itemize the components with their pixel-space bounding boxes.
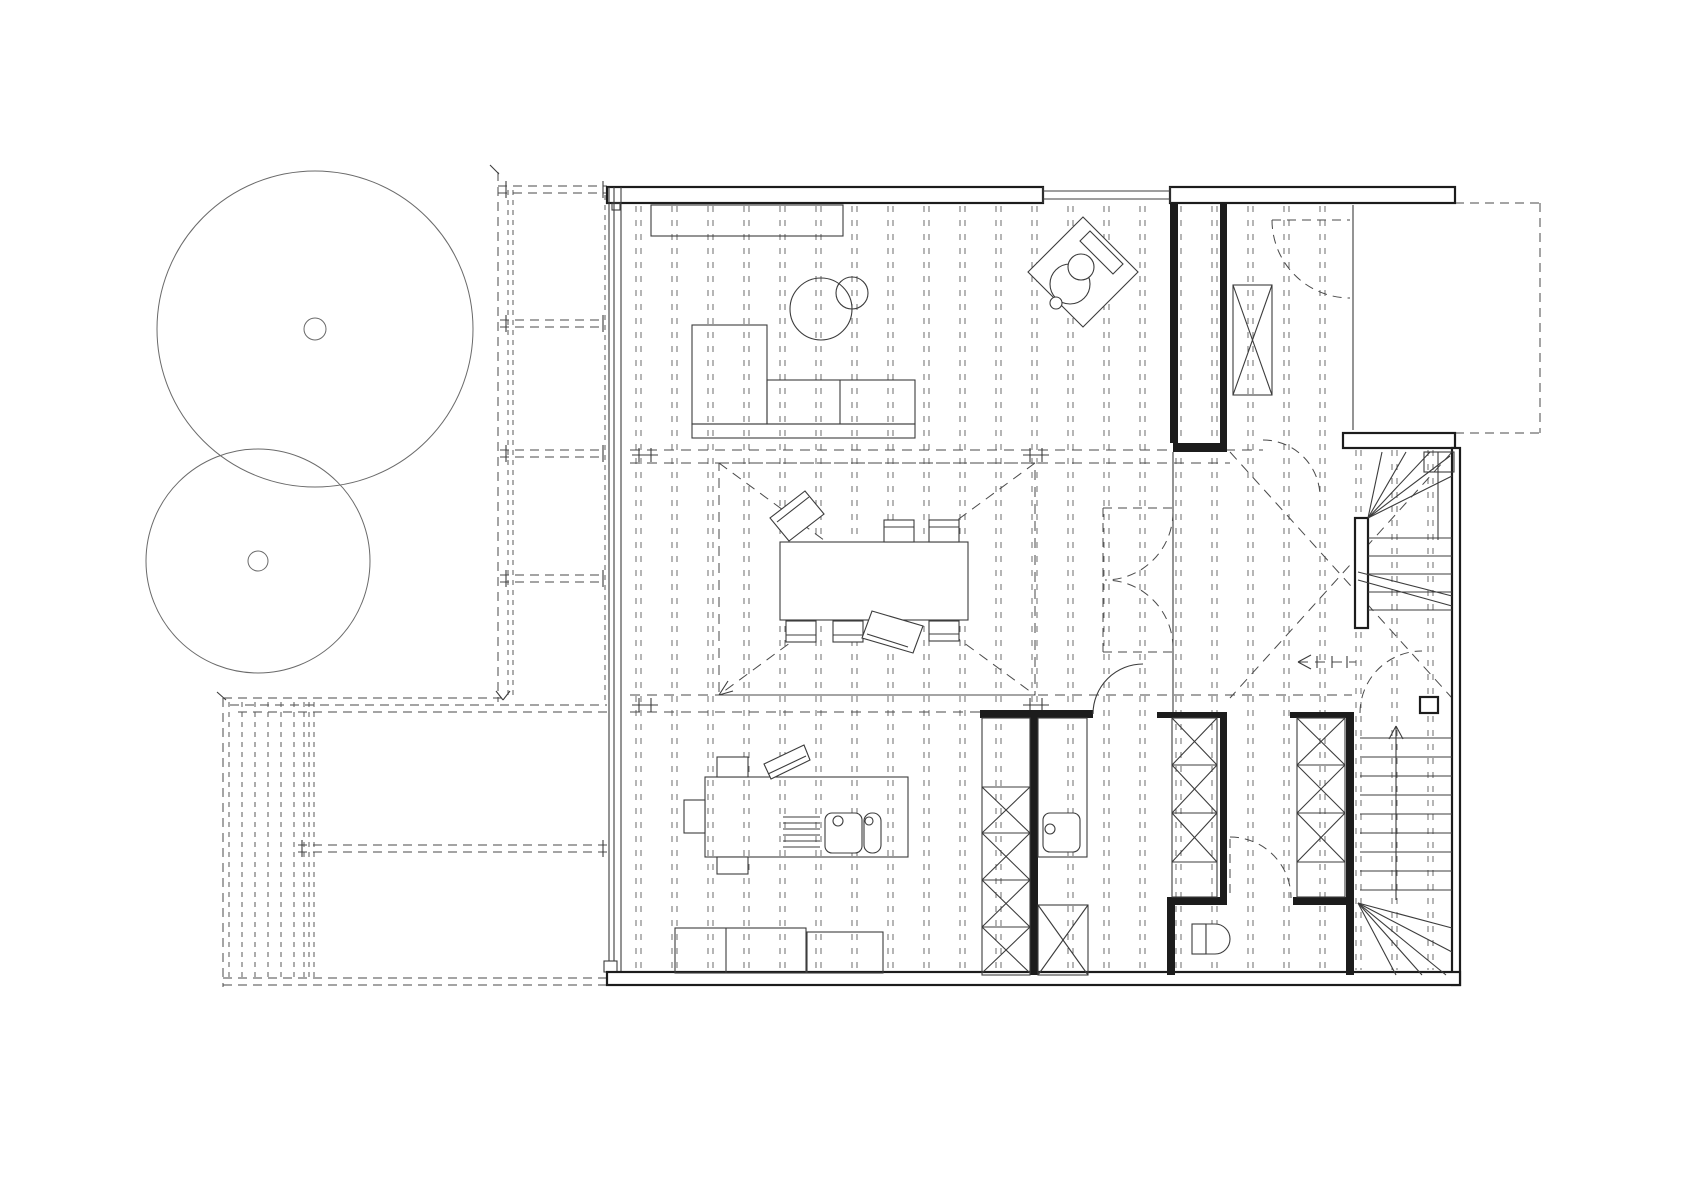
- up-arrow: [1389, 726, 1396, 739]
- east-mid-wall: [1343, 433, 1455, 448]
- dining-table: [780, 542, 968, 620]
- stair-door-swing: [1360, 651, 1422, 713]
- site-trees: [146, 171, 473, 673]
- low-cabinet: [807, 932, 883, 973]
- store-wall: [1290, 712, 1353, 718]
- chair: [884, 520, 914, 542]
- wc-wall: [1167, 897, 1227, 905]
- chair: [929, 621, 959, 641]
- doors: [1093, 220, 1422, 898]
- toilet: [1192, 924, 1206, 954]
- stool: [717, 757, 748, 777]
- bench: [675, 928, 806, 973]
- corner-tick: [490, 165, 499, 174]
- basin: [1043, 813, 1080, 852]
- wardrobe: [1172, 718, 1217, 897]
- north-wall-west: [607, 187, 1043, 203]
- wc-wall: [1220, 712, 1227, 903]
- east-wall: [1452, 448, 1460, 985]
- chair: [833, 621, 863, 642]
- sofa-frame: [692, 424, 915, 438]
- overhead-and-voids: [630, 448, 1452, 712]
- bath-wall: [980, 710, 1093, 718]
- tall-cabinet: [982, 718, 1030, 975]
- winder: [1368, 452, 1382, 518]
- shaft-wall: [1220, 203, 1227, 452]
- kitchen: [675, 745, 908, 973]
- store-wall: [1293, 897, 1353, 905]
- west-deck: [490, 165, 607, 702]
- stairs: [1358, 452, 1454, 975]
- south-deck: [217, 691, 607, 987]
- bath-wall: [1157, 712, 1227, 718]
- tree-canopy-large: [157, 171, 473, 487]
- east-terrace: [1455, 203, 1540, 433]
- wc-wall: [1167, 897, 1175, 975]
- living-furniture: [651, 205, 1138, 438]
- stool-turned: [764, 745, 810, 779]
- bath-door-swing: [1093, 664, 1143, 714]
- chair: [786, 621, 816, 642]
- floor-plan-svg: [0, 0, 1684, 1191]
- wall-stub: [1420, 697, 1438, 713]
- chair: [929, 520, 959, 542]
- stair-wall: [1346, 712, 1354, 975]
- dining-furniture: [770, 491, 968, 653]
- shaft-wall: [1173, 443, 1227, 452]
- tree-canopy-small: [146, 449, 370, 673]
- corner-arrow: [496, 691, 503, 700]
- tree-trunk-large: [304, 318, 326, 340]
- corner-tick: [217, 692, 226, 700]
- floor-plan-page: [0, 0, 1684, 1191]
- stool: [717, 857, 748, 874]
- sofa-chaise: [692, 325, 767, 424]
- wardrobe: [1297, 718, 1345, 897]
- bath-wall: [1030, 718, 1038, 975]
- north-wall-east: [1170, 187, 1455, 203]
- sink: [825, 813, 862, 853]
- stool: [684, 800, 705, 833]
- sideboard: [651, 205, 843, 236]
- entry-door-swing: [1272, 220, 1350, 298]
- tree-trunk-small: [248, 551, 268, 571]
- hall-door-swing: [1263, 440, 1320, 497]
- shaft-wall: [1170, 203, 1178, 443]
- corner-post: [604, 961, 617, 972]
